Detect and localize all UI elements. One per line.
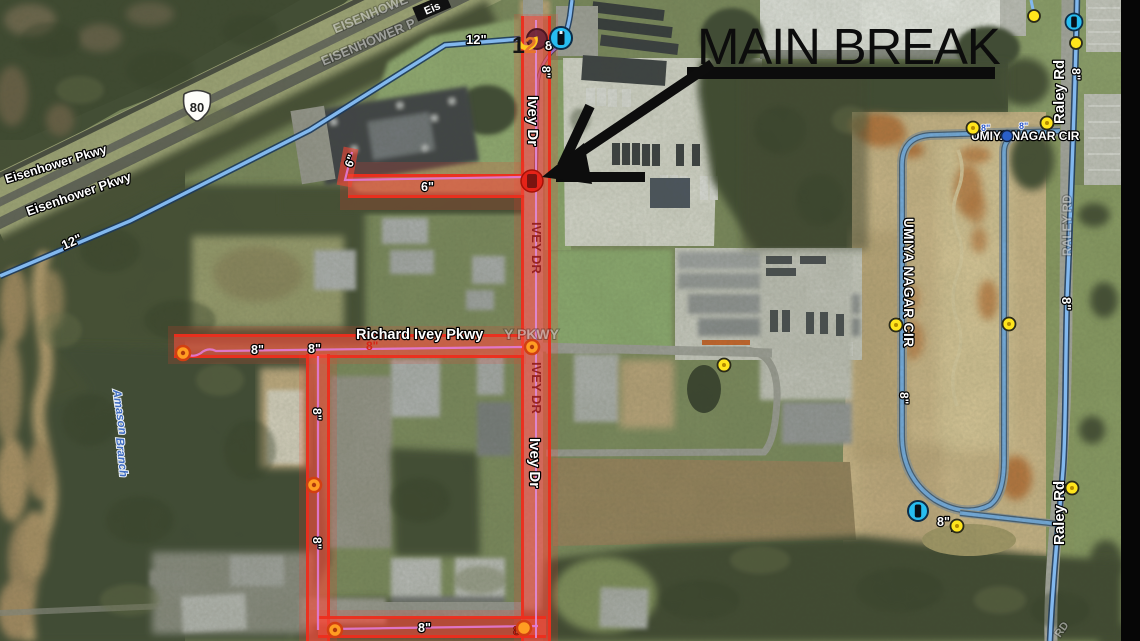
svg-text:8": 8" [251, 343, 264, 357]
svg-text:IVEY DR: IVEY DR [529, 222, 544, 274]
svg-text:8": 8" [897, 392, 911, 404]
svg-text:Ivey Dr: Ivey Dr [524, 96, 541, 146]
svg-text:2: 2 [524, 32, 537, 58]
svg-text:8": 8" [937, 515, 950, 529]
svg-text:8": 8" [310, 537, 324, 549]
svg-text:RALEY RD: RALEY RD [1060, 195, 1074, 256]
svg-text:8": 8" [308, 342, 321, 356]
svg-text:8": 8" [366, 339, 378, 353]
svg-text:8": 8" [981, 123, 990, 133]
svg-text:IVEY DR: IVEY DR [529, 362, 544, 414]
svg-text:8": 8" [1059, 297, 1074, 310]
svg-text:6": 6" [421, 180, 434, 194]
svg-text:Raley Rd: Raley Rd [1051, 60, 1068, 124]
svg-text:MAIN BREAK: MAIN BREAK [697, 18, 1001, 75]
svg-text:8": 8" [418, 621, 431, 635]
svg-text:12": 12" [466, 32, 487, 47]
svg-text:8": 8" [310, 408, 324, 420]
svg-text:8": 8" [1019, 121, 1028, 131]
svg-text:8": 8" [539, 66, 553, 78]
svg-text:Ivey Dr: Ivey Dr [526, 438, 543, 488]
svg-text:8": 8" [1069, 68, 1083, 80]
svg-text:80: 80 [190, 100, 204, 115]
svg-text:UMIYA NAGAR CIR: UMIYA NAGAR CIR [901, 218, 916, 348]
